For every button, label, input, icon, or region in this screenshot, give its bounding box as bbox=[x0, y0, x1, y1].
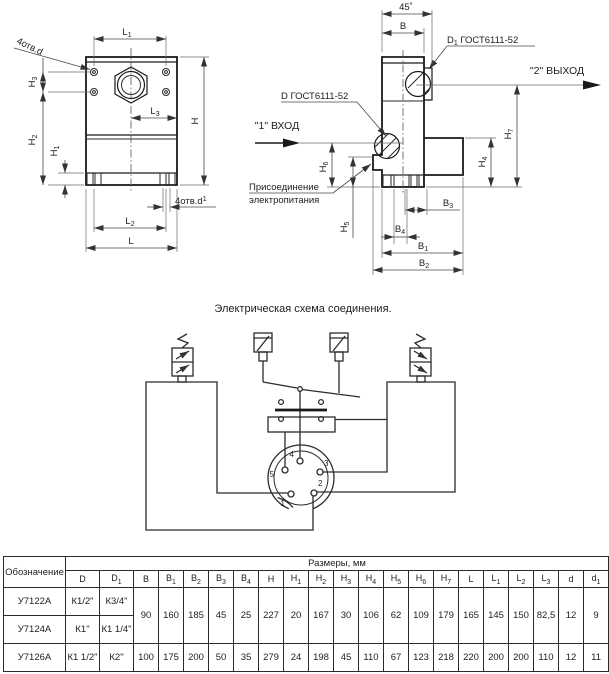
pin-label-1: 1 bbox=[281, 499, 286, 508]
column-header: H5 bbox=[384, 571, 409, 588]
electrical-schematic: Электрическая схема соединения. bbox=[146, 303, 455, 530]
dim-H6: H6 bbox=[318, 162, 330, 173]
table-cell: 185 bbox=[184, 588, 209, 644]
table-cell: 24 bbox=[284, 644, 309, 672]
connector-pin-4 bbox=[297, 458, 303, 464]
column-header: d1 bbox=[584, 571, 609, 588]
connector-pin-2 bbox=[311, 490, 317, 496]
table-cell: 12 bbox=[559, 644, 584, 672]
table-cell: 123 bbox=[409, 644, 434, 672]
pin-label-3: 3 bbox=[324, 459, 329, 468]
column-header: B4 bbox=[234, 571, 259, 588]
table-cell: 20 bbox=[284, 588, 309, 644]
table-cell: 150 bbox=[509, 588, 534, 644]
table-cell: К1 1/2" bbox=[66, 644, 100, 672]
table-cell: 110 bbox=[359, 644, 384, 672]
flow-annotations: "2" ВЫХОД "1" ВХОД bbox=[255, 65, 601, 148]
table-cell: 175 bbox=[159, 644, 184, 672]
table-cell: 82,5 bbox=[534, 588, 559, 644]
column-header: L1 bbox=[484, 571, 509, 588]
column-header: B2 bbox=[184, 571, 209, 588]
table-cell: 106 bbox=[359, 588, 384, 644]
table-cell: 50 bbox=[209, 644, 234, 672]
table-cell: 12 bbox=[559, 588, 584, 644]
table-cell: 200 bbox=[509, 644, 534, 672]
table-body: У7122АК1/2"К3/4"901601854525227201673010… bbox=[4, 588, 609, 672]
table-cell: 9 bbox=[584, 588, 609, 644]
outlet-arrow bbox=[583, 81, 601, 90]
table-cell: 227 bbox=[259, 588, 284, 644]
table-head: ОбозначениеРазмеры, ммDD1BB1B2B3B4HH1H2H… bbox=[4, 557, 609, 588]
inlet-arrow bbox=[283, 139, 300, 148]
table-cell: 109 bbox=[409, 588, 434, 644]
dim-B4: B4 bbox=[395, 224, 405, 236]
table-cell: 30 bbox=[334, 588, 359, 644]
power-label-1: Присоединение bbox=[249, 182, 319, 193]
side-view: "2" ВЫХОД "1" ВХОД D ГОСТ6111-52 D1 ГОСТ… bbox=[249, 2, 601, 275]
side-flange bbox=[424, 138, 463, 175]
inlet-label: "1" ВХОД bbox=[255, 120, 299, 132]
column-header: H6 bbox=[409, 571, 434, 588]
left-coil-symbol bbox=[254, 333, 272, 361]
thread-callouts: D ГОСТ6111-52 D1 ГОСТ6111-52 bbox=[281, 35, 535, 136]
dim-H: H bbox=[190, 117, 201, 124]
table-cell: 179 bbox=[434, 588, 459, 644]
column-header: H3 bbox=[334, 571, 359, 588]
table-cell: К2" bbox=[100, 644, 134, 672]
dim-L: L bbox=[128, 236, 133, 247]
table-cell: 200 bbox=[184, 644, 209, 672]
table-row: У7126АК1 1/2"К2"100175200503527924198451… bbox=[4, 644, 609, 672]
dim-B: B bbox=[400, 21, 406, 32]
gost-d-label: D ГОСТ6111-52 bbox=[281, 91, 348, 102]
dim-H3: H3 bbox=[27, 77, 39, 88]
table-cell: 45 bbox=[334, 644, 359, 672]
pin-label-2: 2 bbox=[318, 479, 323, 488]
dim-B1: B1 bbox=[418, 241, 428, 253]
label-4otv-d1: 4отв.d1 bbox=[175, 196, 207, 207]
left-valve-symbol bbox=[172, 334, 193, 382]
table-header-row: ОбозначениеРазмеры, мм bbox=[4, 557, 609, 571]
model-designation: У7126А bbox=[4, 644, 66, 672]
table-cell: 110 bbox=[534, 644, 559, 672]
table-cell: 218 bbox=[434, 644, 459, 672]
column-header: H bbox=[259, 571, 284, 588]
column-header: H1 bbox=[284, 571, 309, 588]
connector-pin-1 bbox=[288, 491, 294, 497]
table-cell: К1" bbox=[66, 616, 100, 644]
dim-H5: H5 bbox=[339, 222, 351, 233]
power-label-2: электропитания bbox=[249, 195, 319, 206]
connector-pin-3 bbox=[317, 469, 323, 475]
table-cell: 160 bbox=[159, 588, 184, 644]
table-row: У7122АК1/2"К3/4"901601854525227201673010… bbox=[4, 588, 609, 616]
dim-L2: L2 bbox=[125, 216, 134, 228]
table-cell: 200 bbox=[484, 644, 509, 672]
dim-B3: B3 bbox=[443, 198, 453, 210]
table-cell: 198 bbox=[309, 644, 334, 672]
column-header: H2 bbox=[309, 571, 334, 588]
right-valve-symbol bbox=[410, 334, 431, 382]
table-cell: 279 bbox=[259, 644, 284, 672]
column-header: B bbox=[134, 571, 159, 588]
table-cell: 90 bbox=[134, 588, 159, 644]
inlet-port bbox=[375, 134, 400, 159]
schematic-title: Электрическая схема соединения. bbox=[214, 303, 391, 315]
bolt-holes bbox=[91, 69, 170, 96]
pin-label-4: 4 bbox=[290, 450, 295, 459]
technical-drawing: L1 4отв.d H3 H2 H1 L3 H L2 bbox=[0, 0, 609, 553]
outlet-label: "2" ВЫХОД bbox=[530, 65, 584, 77]
dim-H2: H2 bbox=[27, 135, 39, 146]
table-cell: 35 bbox=[234, 644, 259, 672]
round-connector: 4 3 5 1 2 bbox=[268, 445, 334, 511]
table-cell: 100 bbox=[134, 644, 159, 672]
model-designation: У7122А bbox=[4, 588, 66, 616]
table-cell: 145 bbox=[484, 588, 509, 644]
dim-45: 45˚ bbox=[399, 2, 413, 13]
right-coil-symbol bbox=[330, 333, 348, 361]
column-header: H7 bbox=[434, 571, 459, 588]
model-designation: У7124А bbox=[4, 616, 66, 644]
designation-header: Обозначение bbox=[4, 557, 66, 588]
table-cell: К1 1/4" bbox=[100, 616, 134, 644]
dim-H1: H1 bbox=[49, 146, 61, 157]
pin-label-5: 5 bbox=[270, 470, 275, 479]
column-header: B3 bbox=[209, 571, 234, 588]
column-header: L bbox=[459, 571, 484, 588]
table-cell: 45 bbox=[209, 588, 234, 644]
column-header: B1 bbox=[159, 571, 184, 588]
column-header: d bbox=[559, 571, 584, 588]
column-header: H4 bbox=[359, 571, 384, 588]
table-cell: 67 bbox=[384, 644, 409, 672]
front-view: L1 4отв.d H3 H2 H1 L3 H L2 bbox=[14, 27, 216, 252]
dim-B2: B2 bbox=[419, 258, 429, 270]
table-cell: 25 bbox=[234, 588, 259, 644]
drawing-sheet: L1 4отв.d H3 H2 H1 L3 H L2 bbox=[0, 0, 609, 674]
table-cell: 11 bbox=[584, 644, 609, 672]
table-cell: 220 bbox=[459, 644, 484, 672]
table-cell: 62 bbox=[384, 588, 409, 644]
table-cell: К3/4" bbox=[100, 588, 134, 616]
dim-L1: L1 bbox=[122, 27, 131, 39]
table-cell: К1/2" bbox=[66, 588, 100, 616]
column-header: L3 bbox=[534, 571, 559, 588]
dim-L3: L3 bbox=[150, 106, 159, 118]
column-header: D1 bbox=[100, 571, 134, 588]
dimensions-table: ОбозначениеРазмеры, ммDD1BB1B2B3B4HH1H2H… bbox=[3, 556, 609, 672]
table-cell: 167 bbox=[309, 588, 334, 644]
dim-H4: H4 bbox=[477, 157, 489, 168]
dim-H7: H7 bbox=[503, 129, 515, 140]
connector-pin-5 bbox=[282, 467, 288, 473]
column-header: L2 bbox=[509, 571, 534, 588]
group-header: Размеры, мм bbox=[66, 557, 609, 571]
label-4otv-d: 4отв.d bbox=[15, 36, 45, 58]
table-cell: 165 bbox=[459, 588, 484, 644]
table-header-row: DD1BB1B2B3B4HH1H2H3H4H5H6H7LL1L2L3dd1 bbox=[4, 571, 609, 588]
gost-d1-label: D1 ГОСТ6111-52 bbox=[447, 35, 518, 47]
column-header: D bbox=[66, 571, 100, 588]
